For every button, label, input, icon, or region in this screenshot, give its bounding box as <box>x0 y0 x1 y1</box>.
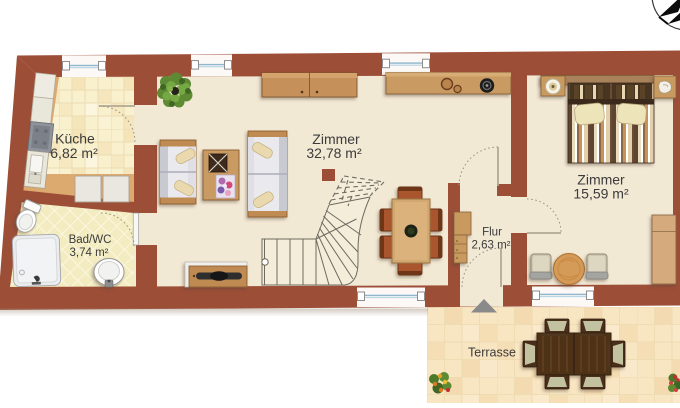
svg-text:32,78 m²: 32,78 m² <box>306 145 362 161</box>
svg-text:15,59 m²: 15,59 m² <box>573 186 629 202</box>
svg-text:2,63 m²: 2,63 m² <box>472 240 511 252</box>
svg-text:6,82 m²: 6,82 m² <box>50 145 98 161</box>
svg-text:3,74 m²: 3,74 m² <box>70 247 109 259</box>
svg-text:Bad/WC: Bad/WC <box>69 234 112 246</box>
svg-text:Flur: Flur <box>482 227 502 239</box>
svg-text:Terrasse: Terrasse <box>468 346 516 360</box>
